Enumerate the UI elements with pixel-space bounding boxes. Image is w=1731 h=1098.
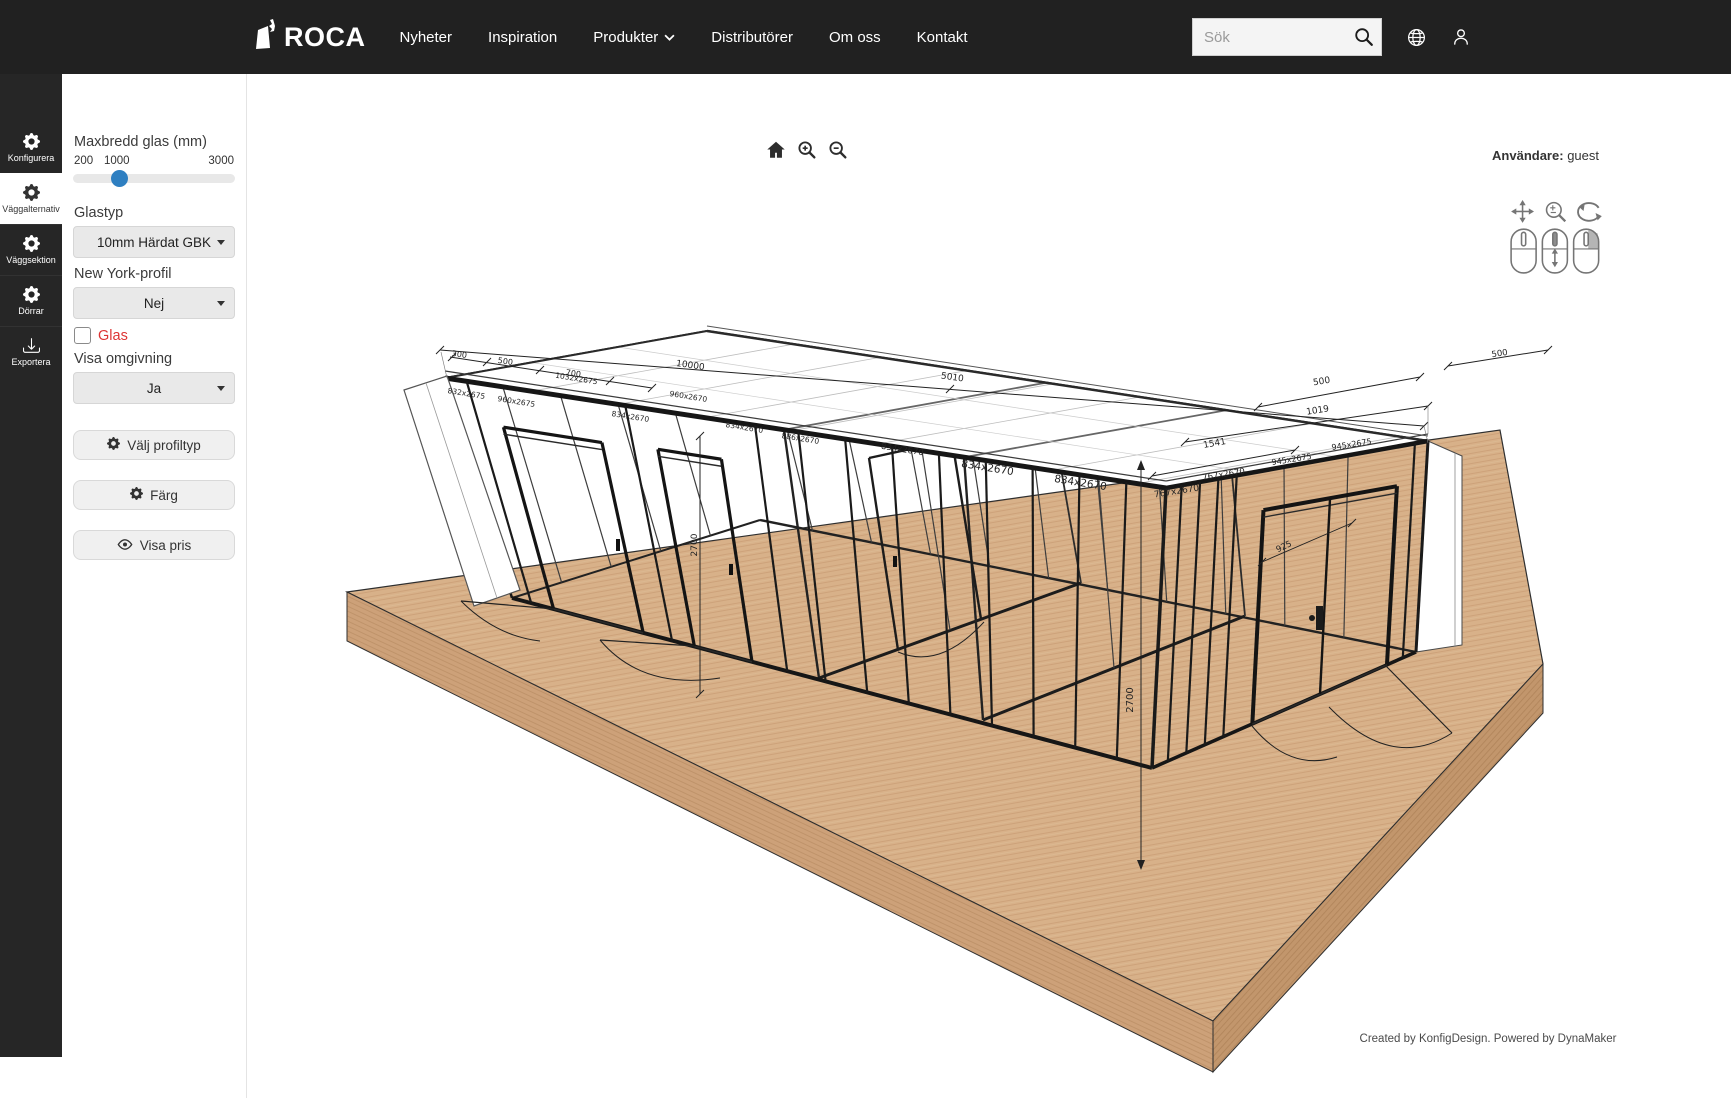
rail-item-dorrar[interactable]: Dörrar	[0, 275, 62, 326]
caret-down-icon	[217, 240, 225, 245]
mouse-middle-scroll-icon	[1542, 229, 1567, 273]
svg-text:2700: 2700	[690, 533, 700, 556]
caret-down-icon	[217, 301, 225, 306]
valj-profiltyp-button[interactable]: Välj profiltyp	[73, 430, 235, 460]
rail-item-label: Väggalternativ	[2, 204, 60, 214]
slider-min-label: 200	[74, 155, 93, 167]
nav-link-nyheter[interactable]: Nyheter	[400, 29, 453, 46]
user-label: Användare:	[1492, 148, 1564, 163]
mouse-help-legend	[1510, 200, 1606, 279]
eye-icon	[117, 538, 133, 553]
ny-profil-label: New York-profil	[74, 266, 235, 282]
nav-link-produkter[interactable]: Produkter	[593, 29, 675, 46]
mouse-right-drag-icon	[1574, 229, 1599, 273]
slider-thumb[interactable]	[111, 170, 128, 187]
pan-icon	[1511, 200, 1534, 223]
rail-item-label: Exportera	[11, 357, 50, 367]
glas-checkbox-label: Glas	[98, 328, 128, 344]
glastyp-select[interactable]: 10mm Härdat GBK	[73, 226, 235, 258]
user-value: guest	[1567, 148, 1599, 163]
omgivning-label: Visa omgivning	[74, 351, 235, 367]
rail-item-label: Dörrar	[18, 306, 44, 316]
gear-icon	[130, 487, 143, 503]
gear-icon	[23, 133, 40, 150]
tool-rail: Konfigurera Väggalternativ Väggsektion D…	[0, 74, 62, 1057]
glass-wall-structure	[347, 326, 1552, 1072]
zoom-in-icon[interactable]	[796, 139, 818, 161]
rail-item-label: Konfigurera	[8, 153, 55, 163]
svg-text:500: 500	[1312, 376, 1331, 389]
zoom-out-icon[interactable]	[827, 139, 849, 161]
top-navbar: ROCA Nyheter Inspiration Produkter Distr…	[0, 0, 1731, 74]
nav-link-distributorer[interactable]: Distributörer	[711, 29, 793, 46]
omgivning-select[interactable]: Ja	[73, 372, 235, 404]
svg-text:834x2670: 834x2670	[611, 409, 650, 424]
gear-icon	[23, 235, 40, 252]
maxbredd-slider[interactable]	[73, 174, 235, 183]
slider-scale: 200 1000 3000	[73, 155, 235, 170]
chevron-down-icon	[664, 29, 675, 46]
rail-item-label: Väggsektion	[6, 255, 56, 265]
gear-icon	[23, 286, 40, 303]
zoom-icon	[1547, 203, 1566, 222]
search-icon[interactable]	[1353, 26, 1375, 48]
ny-profil-select[interactable]: Nej	[73, 287, 235, 319]
svg-text:500: 500	[1491, 348, 1509, 360]
rail-item-vaggsektion[interactable]: Väggsektion	[0, 224, 62, 275]
nav-links: Nyheter Inspiration Produkter Distributö…	[400, 29, 968, 46]
viewport-toolbar	[765, 139, 849, 161]
download-icon	[23, 337, 40, 354]
nav-link-inspiration[interactable]: Inspiration	[488, 29, 557, 46]
glas-checkbox-row: Glas	[74, 327, 235, 344]
config-panel: Maxbredd glas (mm) 200 1000 3000 Glastyp…	[62, 74, 247, 1098]
brand-logo[interactable]: ROCA	[253, 16, 366, 59]
rail-item-konfigurera[interactable]: Konfigurera	[0, 123, 62, 173]
gear-icon	[107, 437, 120, 453]
svg-text:300: 300	[451, 349, 467, 360]
glas-checkbox[interactable]	[74, 327, 91, 344]
glastyp-label: Glastyp	[74, 205, 235, 221]
mouse-left-icon	[1511, 229, 1536, 273]
gear-icon	[23, 184, 40, 201]
globe-icon[interactable]	[1406, 27, 1427, 48]
slider-label: Maxbredd glas (mm)	[74, 134, 235, 150]
svg-text:960x2675: 960x2675	[497, 394, 536, 409]
nav-link-om-oss[interactable]: Om oss	[829, 29, 881, 46]
nav-link-kontakt[interactable]: Kontakt	[917, 29, 968, 46]
rotate-icon	[1578, 203, 1602, 221]
brand-logo-icon	[253, 16, 283, 59]
brand-name: ROCA	[284, 22, 366, 53]
credit-line: Created by KonfigDesign. Powered by Dyna…	[1328, 1033, 1648, 1045]
caret-down-icon	[217, 386, 225, 391]
farg-button[interactable]: Färg	[73, 480, 235, 510]
3d-viewport[interactable]: 3005007001000050105005001019154127002700…	[248, 74, 1731, 1098]
slider-value-label: 1000	[104, 155, 130, 167]
user-status: Användare: guest	[1492, 148, 1599, 163]
svg-text:2700: 2700	[1125, 687, 1136, 712]
viewport: 3005007001000050105005001019154127002700…	[248, 74, 1731, 1098]
rail-item-exportera[interactable]: Exportera	[0, 326, 62, 377]
rail-item-vaggalternativ[interactable]: Väggalternativ	[0, 173, 62, 224]
user-account-icon[interactable]	[1451, 27, 1471, 47]
svg-text:1019: 1019	[1306, 404, 1330, 418]
slider-max-label: 3000	[208, 155, 234, 167]
visa-pris-button[interactable]: Visa pris	[73, 530, 235, 560]
home-icon[interactable]	[765, 139, 787, 161]
svg-text:500: 500	[497, 356, 513, 367]
search-box	[1192, 18, 1382, 56]
